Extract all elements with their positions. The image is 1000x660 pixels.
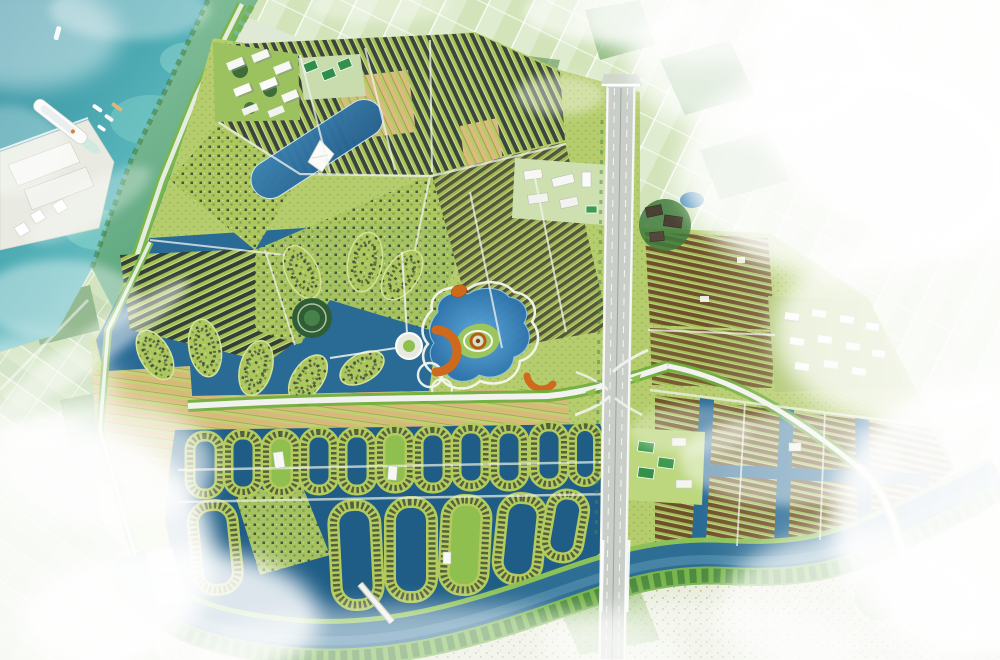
cloud	[515, 75, 605, 115]
masterplan-svg: Aerial bird's-eye masterplan rendering o…	[0, 0, 1000, 660]
campus-building	[676, 480, 692, 488]
clubhouse	[387, 466, 397, 481]
clubhouse	[443, 552, 451, 564]
roundabout	[396, 333, 422, 359]
sports-court	[637, 467, 654, 479]
commercial-cluster	[512, 158, 608, 225]
resort-roof	[663, 215, 682, 228]
masterplan-render: Aerial bird's-eye masterplan rendering o…	[0, 0, 1000, 660]
sports-court	[657, 457, 674, 469]
clubhouse	[273, 451, 285, 468]
sports-courts	[298, 54, 366, 100]
expressway-river-bridge-edge	[601, 540, 603, 612]
expressway-river-bridge-edge	[627, 540, 629, 612]
high-rise-cluster	[213, 42, 302, 122]
sports-court	[586, 206, 597, 213]
cloud	[630, 405, 750, 455]
housing-loop	[443, 499, 488, 591]
resort-roof	[650, 232, 665, 242]
white-tower	[582, 172, 591, 187]
commercial-ground	[512, 158, 608, 225]
island-stage-center	[476, 339, 480, 343]
tree-circle-plaza	[292, 298, 332, 338]
